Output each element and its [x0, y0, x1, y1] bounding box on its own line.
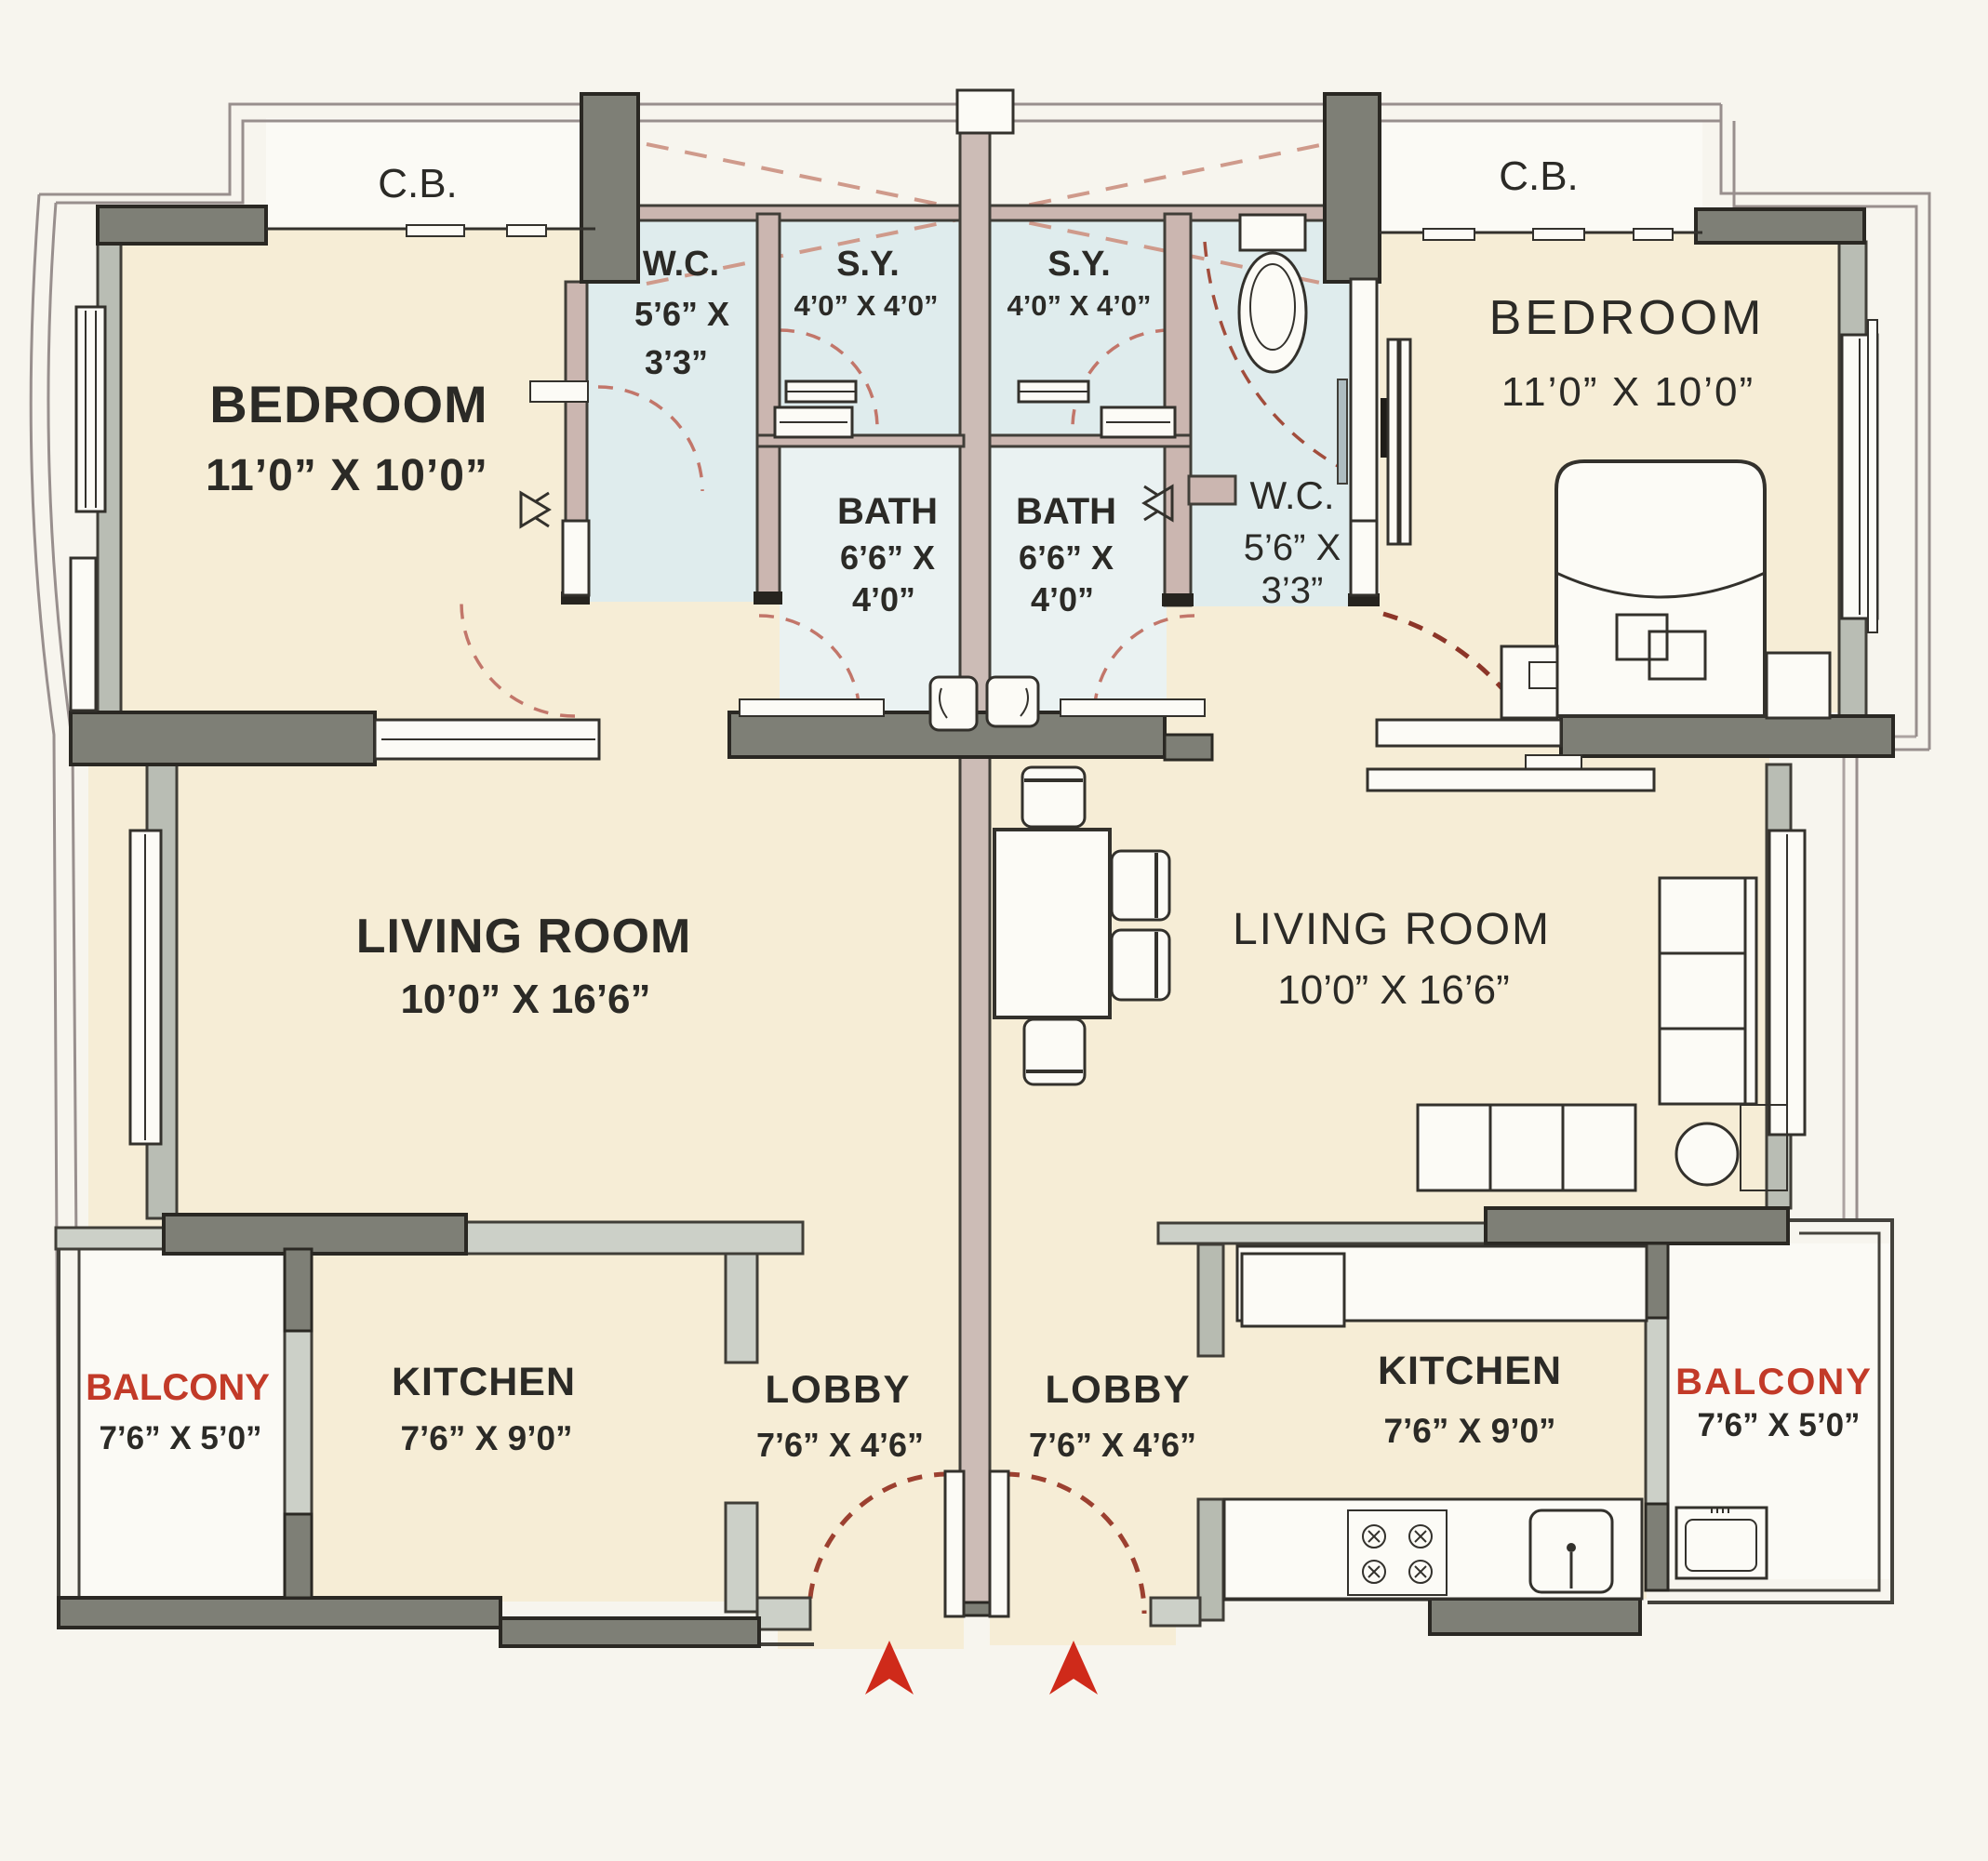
svg-text:5’6” X: 5’6” X [1244, 527, 1341, 568]
svg-text:LIVING ROOM: LIVING ROOM [356, 910, 692, 964]
svg-text:6’6” X: 6’6” X [1019, 538, 1114, 577]
svg-text:W.C.: W.C. [1250, 473, 1335, 517]
svg-text:7’6” X 9’0”: 7’6” X 9’0” [400, 1419, 572, 1457]
svg-text:LOBBY: LOBBY [766, 1367, 912, 1411]
svg-text:11’0” X 10’0”: 11’0” X 10’0” [1501, 369, 1755, 415]
svg-text:4’0” X 4’0”: 4’0” X 4’0” [794, 289, 938, 322]
svg-text:6’6” X: 6’6” X [840, 538, 935, 577]
svg-text:BALCONY: BALCONY [1675, 1362, 1873, 1402]
svg-text:4’0”: 4’0” [852, 580, 915, 618]
svg-text:W.C.: W.C. [643, 245, 719, 284]
svg-text:S.Y.: S.Y. [836, 245, 900, 284]
svg-text:BEDROOM: BEDROOM [1489, 291, 1766, 345]
svg-text:10’0” X 16’6”: 10’0” X 16’6” [1277, 967, 1509, 1013]
svg-text:7’6” X 5’0”: 7’6” X 5’0” [1697, 1407, 1860, 1443]
svg-text:C.B.: C.B. [1499, 153, 1579, 199]
svg-text:7’6” X 4’6”: 7’6” X 4’6” [1029, 1426, 1196, 1464]
svg-text:KITCHEN: KITCHEN [392, 1360, 576, 1404]
svg-text:7’6” X 5’0”: 7’6” X 5’0” [99, 1420, 261, 1456]
svg-text:C.B.: C.B. [378, 161, 458, 206]
svg-text:BATH: BATH [837, 491, 938, 532]
svg-text:10’0” X 16’6”: 10’0” X 16’6” [400, 977, 650, 1022]
svg-text:7’6” X 9’0”: 7’6” X 9’0” [1383, 1412, 1555, 1450]
svg-text:3’3”: 3’3” [1261, 570, 1324, 611]
svg-text:BATH: BATH [1016, 491, 1116, 532]
svg-text:7’6” X 4’6”: 7’6” X 4’6” [756, 1426, 924, 1464]
svg-text:LIVING ROOM: LIVING ROOM [1233, 905, 1551, 954]
svg-text:BALCONY: BALCONY [86, 1367, 270, 1408]
svg-text:BEDROOM: BEDROOM [209, 375, 487, 433]
svg-text:11’0” X 10’0”: 11’0” X 10’0” [206, 451, 488, 500]
svg-text:5’6” X: 5’6” X [634, 295, 729, 333]
svg-text:3’3”: 3’3” [645, 343, 708, 381]
svg-text:4’0” X 4’0”: 4’0” X 4’0” [1007, 289, 1151, 322]
svg-text:KITCHEN: KITCHEN [1378, 1349, 1562, 1393]
svg-text:4’0”: 4’0” [1031, 580, 1094, 618]
svg-text:S.Y.: S.Y. [1047, 245, 1111, 284]
svg-text:LOBBY: LOBBY [1046, 1367, 1192, 1411]
